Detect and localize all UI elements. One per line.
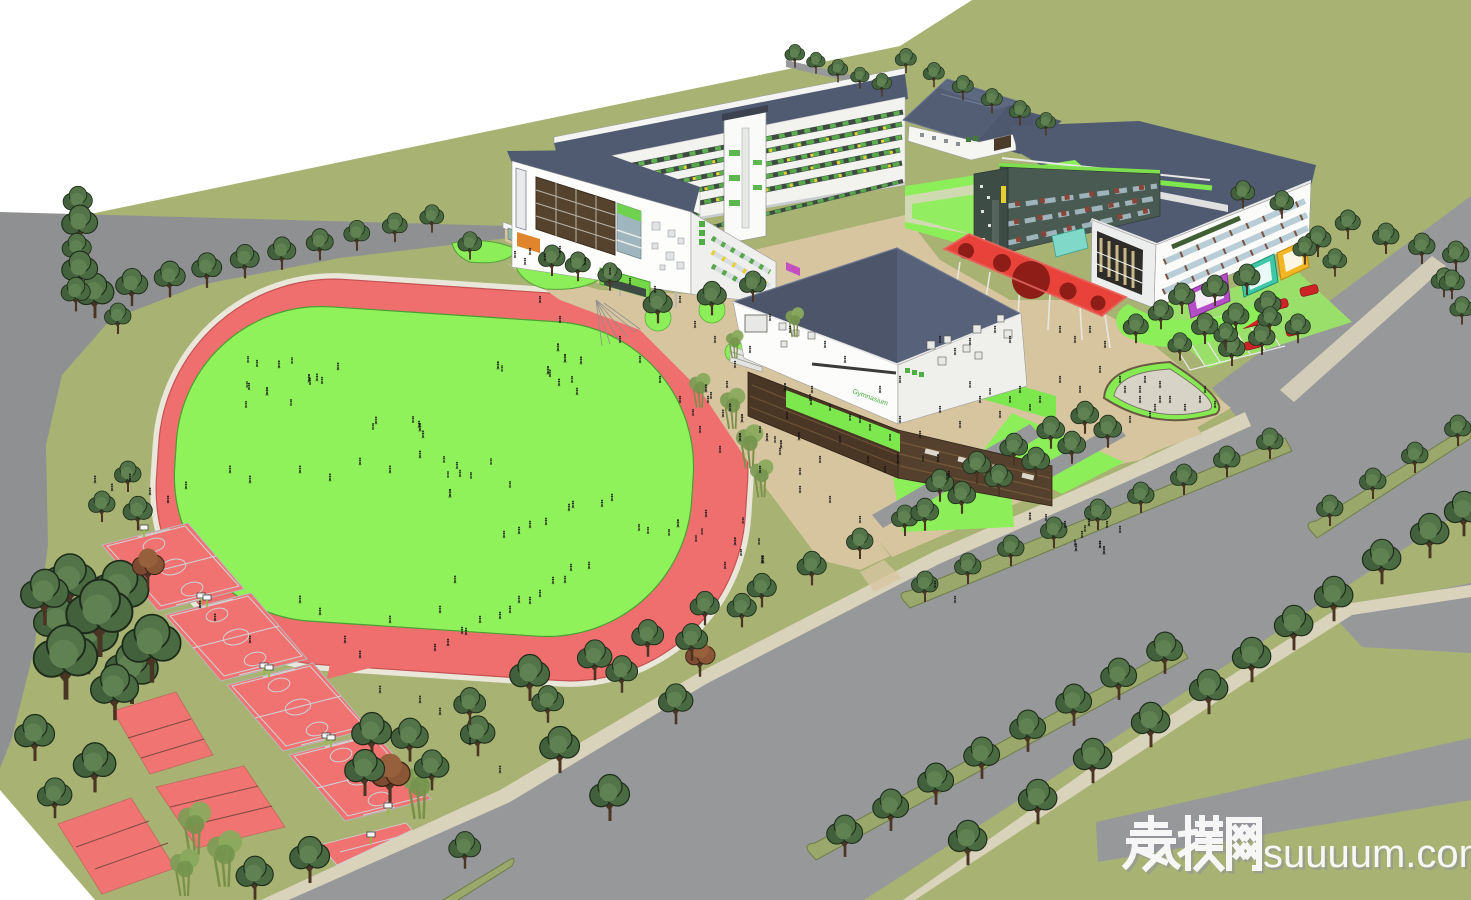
svg-text:suuuum.com: suuuum.com — [1263, 832, 1471, 876]
